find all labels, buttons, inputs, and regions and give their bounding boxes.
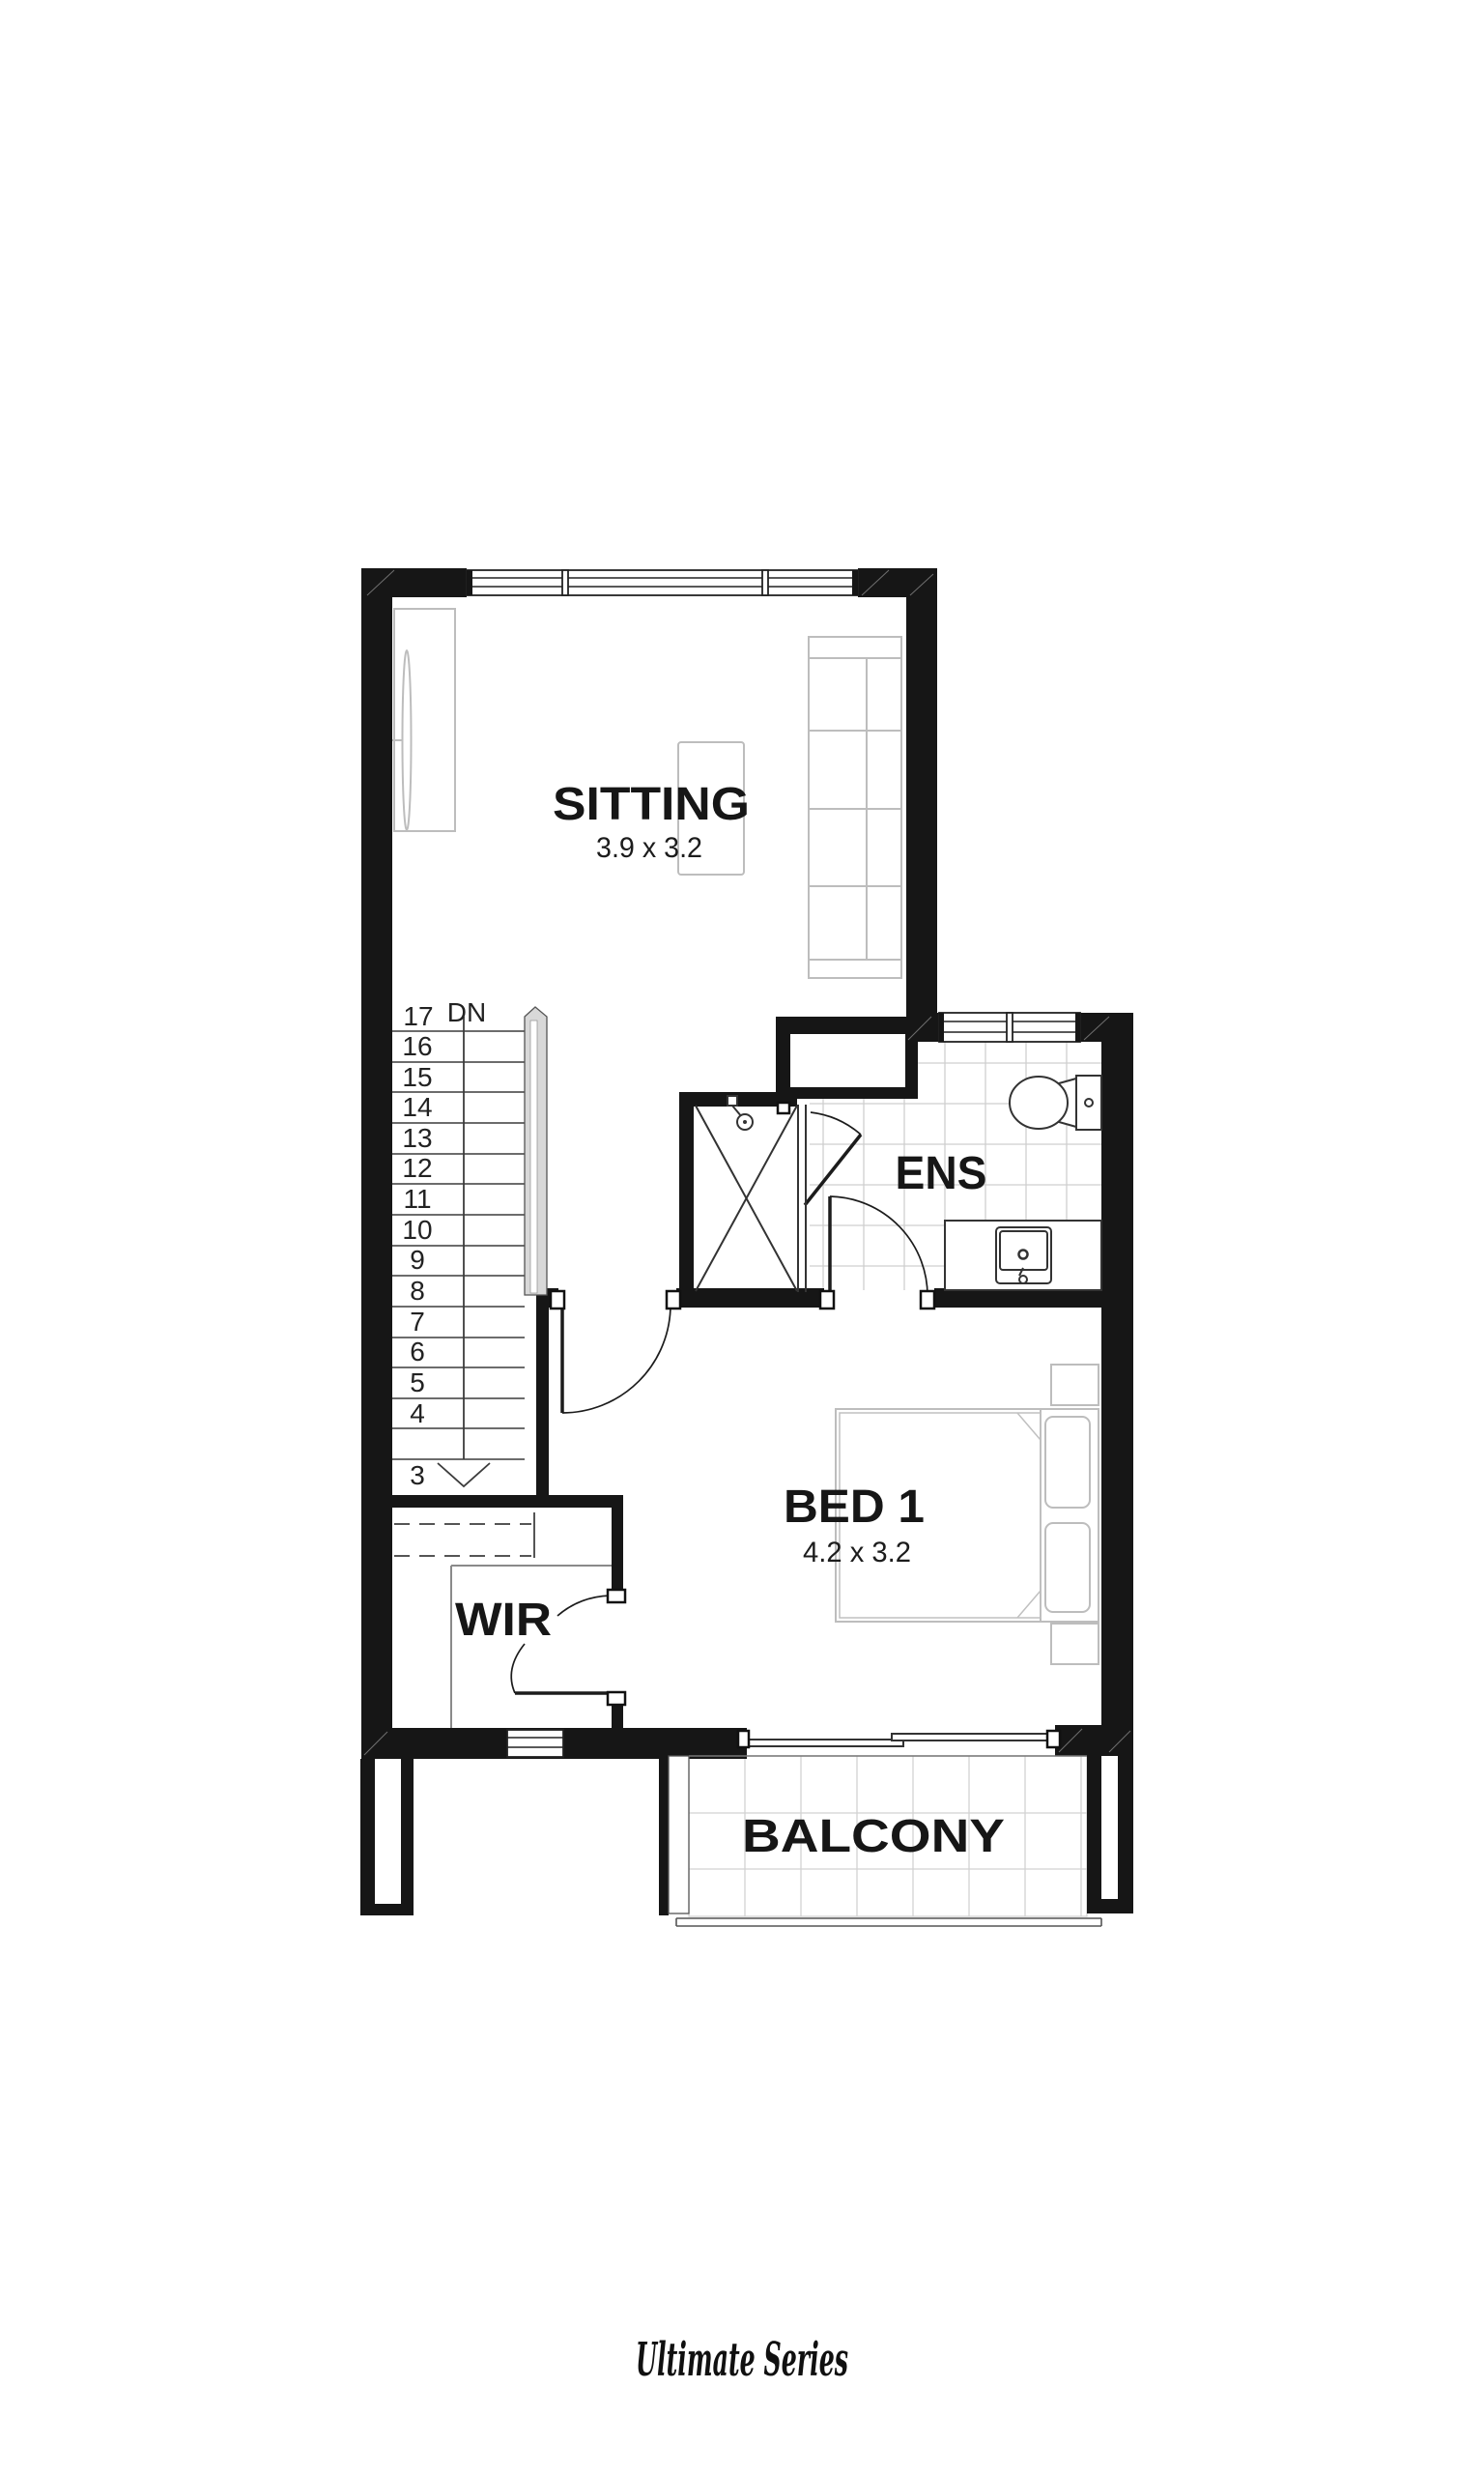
svg-text:16: 16	[402, 1031, 432, 1061]
svg-text:7: 7	[410, 1307, 425, 1337]
footer-brand-script: Ultimate Series	[636, 2333, 848, 2387]
svg-text:15: 15	[402, 1062, 432, 1092]
stair-direction-arrow	[438, 1017, 490, 1486]
svg-text:10: 10	[402, 1215, 432, 1245]
toilet-symbol	[1010, 1076, 1101, 1130]
sitting-window	[467, 570, 858, 595]
stair-step-3: 3	[410, 1460, 425, 1490]
vanity-symbol	[945, 1221, 1101, 1290]
svg-text:9: 9	[410, 1245, 425, 1275]
floor-plan-page: SITTING 3.9 x 3.2 ENS BED 1 4.2 x 3.2 WI…	[0, 0, 1484, 2474]
floor-plan: SITTING 3.9 x 3.2 ENS BED 1 4.2 x 3.2 WI…	[0, 0, 1484, 2474]
ens-window	[939, 1013, 1080, 1042]
svg-text:12: 12	[402, 1153, 432, 1183]
svg-text:14: 14	[402, 1092, 432, 1122]
svg-text:5: 5	[410, 1367, 425, 1397]
stair-step-17: 17	[403, 1001, 433, 1031]
tv-unit-symbol	[392, 609, 455, 831]
wir-shelf-dashed	[394, 1512, 534, 1558]
svg-text:13: 13	[402, 1123, 432, 1153]
room-label-bed1: BED 1	[784, 1482, 925, 1533]
svg-text:8: 8	[410, 1276, 425, 1306]
shower-symbol	[696, 1096, 806, 1292]
stair-handrail	[525, 1007, 547, 1295]
svg-text:4: 4	[410, 1398, 425, 1428]
wir-window	[507, 1730, 563, 1757]
room-label-wir: WIR	[455, 1595, 552, 1646]
stair-dn-label: DN	[447, 997, 486, 1027]
bed1-door-swing	[562, 1305, 671, 1413]
balcony-balustrade	[676, 1918, 1101, 1926]
svg-text:6: 6	[410, 1337, 425, 1366]
stair-numbers: 17 DN 16 15 14 13 12 11 10 9 8 7 6 5 4 3	[402, 997, 486, 1490]
room-dims-sitting: 3.9 x 3.2	[596, 832, 702, 864]
room-label-ens: ENS	[896, 1148, 987, 1199]
room-label-sitting: SITTING	[553, 779, 750, 830]
wir-partition-lines	[451, 1566, 612, 1728]
room-label-balcony: BALCONY	[742, 1811, 1005, 1862]
room-dims-bed1: 4.2 x 3.2	[803, 1537, 911, 1568]
svg-text:11: 11	[403, 1184, 431, 1214]
ens-door-swing	[830, 1196, 927, 1301]
sofa-symbol	[809, 637, 901, 978]
sliding-door	[689, 1731, 1087, 1756]
shower-door-swing	[805, 1112, 861, 1205]
